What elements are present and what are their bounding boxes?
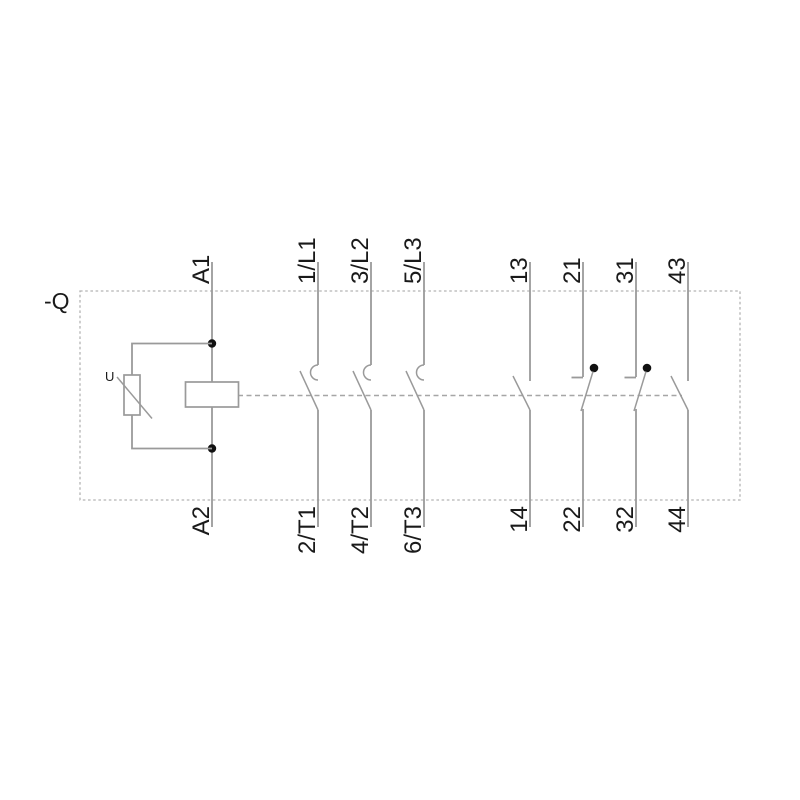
contactor-schematic: -Q A1 U A2 1/L1 2/T1 3/L2 4/ [0,0,800,800]
mirror-contact-dot [643,364,652,373]
varistor-u-label: U [105,369,114,384]
terminal-label: 5/L3 [400,237,427,284]
coil-branch: A1 U A2 [105,255,239,536]
terminal-label: 1/L1 [294,237,321,284]
terminal-label: 4/T2 [347,506,374,554]
suppressor-bottom-wire [132,415,212,449]
terminal-label: 31 [612,257,639,284]
terminal-label: 44 [664,506,691,533]
terminal-label: 14 [506,506,533,533]
terminal-label: 13 [506,257,533,284]
suppressor-top-wire [132,344,212,376]
device-ref-label: -Q [44,288,70,314]
contact-blade [353,371,371,410]
contact-blade [671,376,688,410]
main-contact-arc [364,365,371,380]
terminal-label: 21 [559,257,586,284]
terminal-label: 6/T3 [400,506,427,554]
surge-suppressor: U [105,344,212,449]
contact-blade [513,376,530,410]
varistor-diagonal [117,377,152,419]
coil-symbol [186,382,239,407]
aux-contact-no-43: 43 44 [664,257,691,532]
terminal-label: 22 [559,506,586,533]
mirror-contact-dot [590,364,599,373]
terminal-label: 2/T1 [294,506,321,554]
contact-blade [300,371,318,410]
contact-blade [406,371,424,410]
schematic-canvas: -Q A1 U A2 1/L1 2/T1 3/L2 4/ [0,0,800,800]
terminal-label: 3/L2 [347,237,374,284]
terminal-label: 32 [612,506,639,533]
main-contact-arc [417,365,424,380]
terminal-label: 43 [664,257,691,284]
terminal-label-a1: A1 [188,255,215,284]
terminal-label-a2: A2 [188,506,215,535]
main-contact-arc [311,365,319,380]
